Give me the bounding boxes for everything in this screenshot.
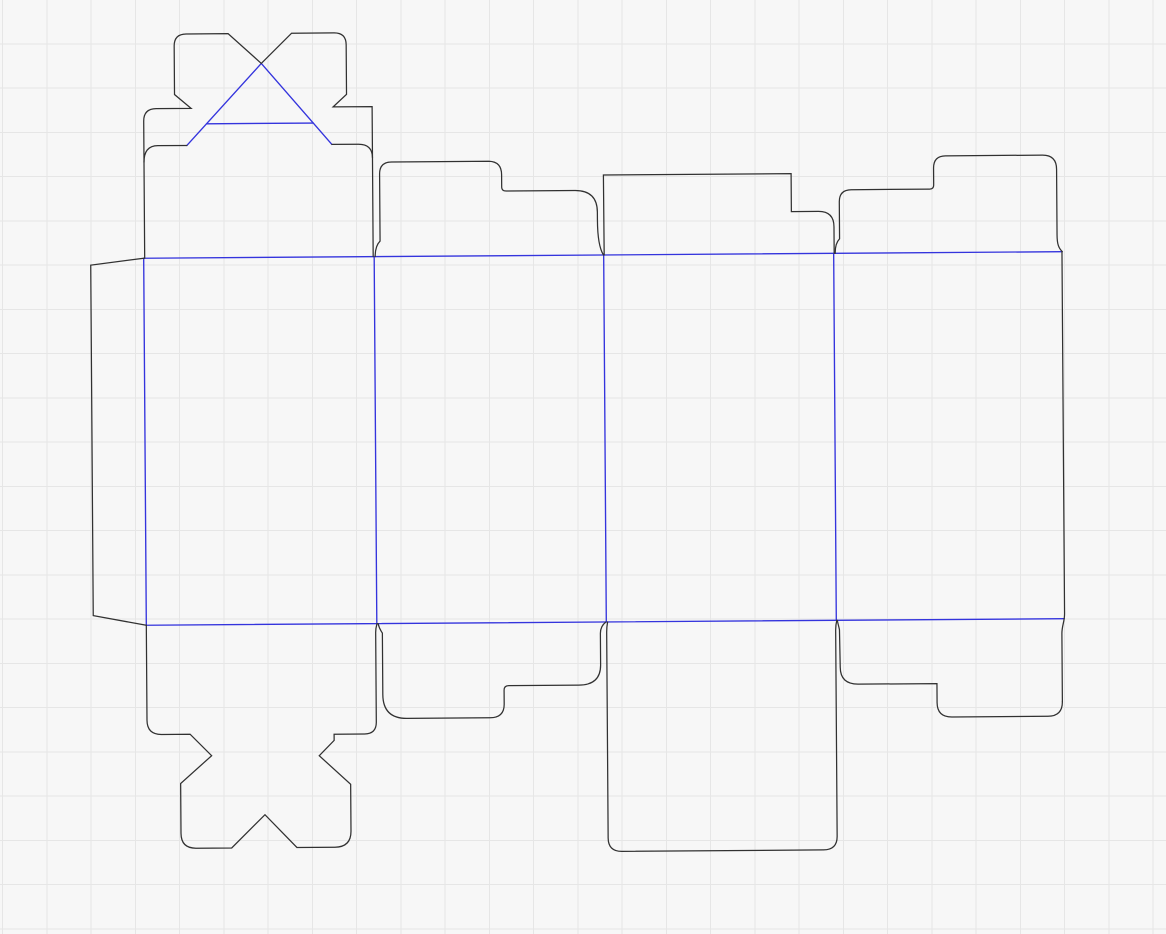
fold-crashlock-horizontal[interactable] bbox=[207, 123, 314, 124]
canvas-background bbox=[0, 0, 1166, 934]
canvas-svg bbox=[0, 0, 1166, 934]
dieline-canvas[interactable] bbox=[0, 0, 1166, 934]
